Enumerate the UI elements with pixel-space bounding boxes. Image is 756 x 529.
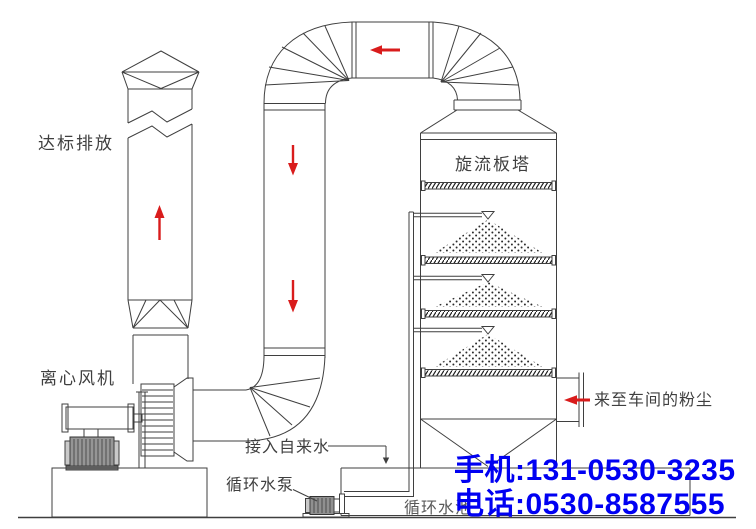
contact-info: 手机:131-0530-3235 电话:0530-8587555: [454, 454, 736, 521]
inlet-arrow-icon: [564, 395, 590, 405]
fan-base: [52, 468, 207, 517]
flow-up-arrow-icon: [155, 205, 165, 240]
fan-label: 离心风机: [40, 369, 116, 388]
spray-cone: [434, 282, 543, 307]
diagram-linework: [18, 22, 736, 518]
tower-label: 旋流板塔: [455, 155, 531, 174]
elbow-top-left: [264, 22, 352, 104]
spray-cone: [434, 220, 543, 254]
contact-phone: 电话:0530-8587555: [454, 488, 725, 521]
spray-system: [414, 212, 544, 368]
flow-left-arrow-icon: [370, 45, 400, 55]
flow-down-arrow-icon-1: [288, 145, 298, 176]
stack-transition: [128, 300, 192, 384]
duct-down: [264, 104, 325, 359]
tap-water-line: [328, 446, 389, 464]
fan-motor: [65, 429, 119, 470]
elbow-top-right: [433, 22, 520, 100]
flow-arrows: [155, 45, 591, 405]
diagram-canvas: 达标排放 离心风机 旋流板塔 来至车间的粉尘 接入自来水 循环水泵 循环水池 手…: [0, 0, 756, 529]
elbow-bottom: [193, 356, 325, 442]
rain-cap-icon: [122, 51, 199, 89]
spray-cone: [434, 334, 543, 367]
tap-water-label: 接入自来水: [245, 438, 330, 456]
stack-body: [128, 89, 192, 300]
fan-group: [52, 378, 207, 517]
spray-riser-pipe: [344, 212, 414, 497]
tower-top-flange: [421, 100, 557, 133]
fan-impeller: [141, 384, 174, 456]
spray-nozzle: [482, 327, 494, 335]
fan-casing: [174, 378, 193, 461]
pump-label: 循环水泵: [226, 476, 294, 494]
flow-down-arrow-icon-2: [288, 280, 298, 313]
inlet-label: 来至车间的粉尘: [594, 391, 713, 409]
break-symbol: [128, 109, 192, 123]
spray-nozzle: [482, 275, 494, 283]
contact-mobile: 手机:131-0530-3235: [454, 454, 736, 487]
emission-label: 达标排放: [38, 134, 114, 153]
spray-nozzle: [482, 212, 494, 220]
